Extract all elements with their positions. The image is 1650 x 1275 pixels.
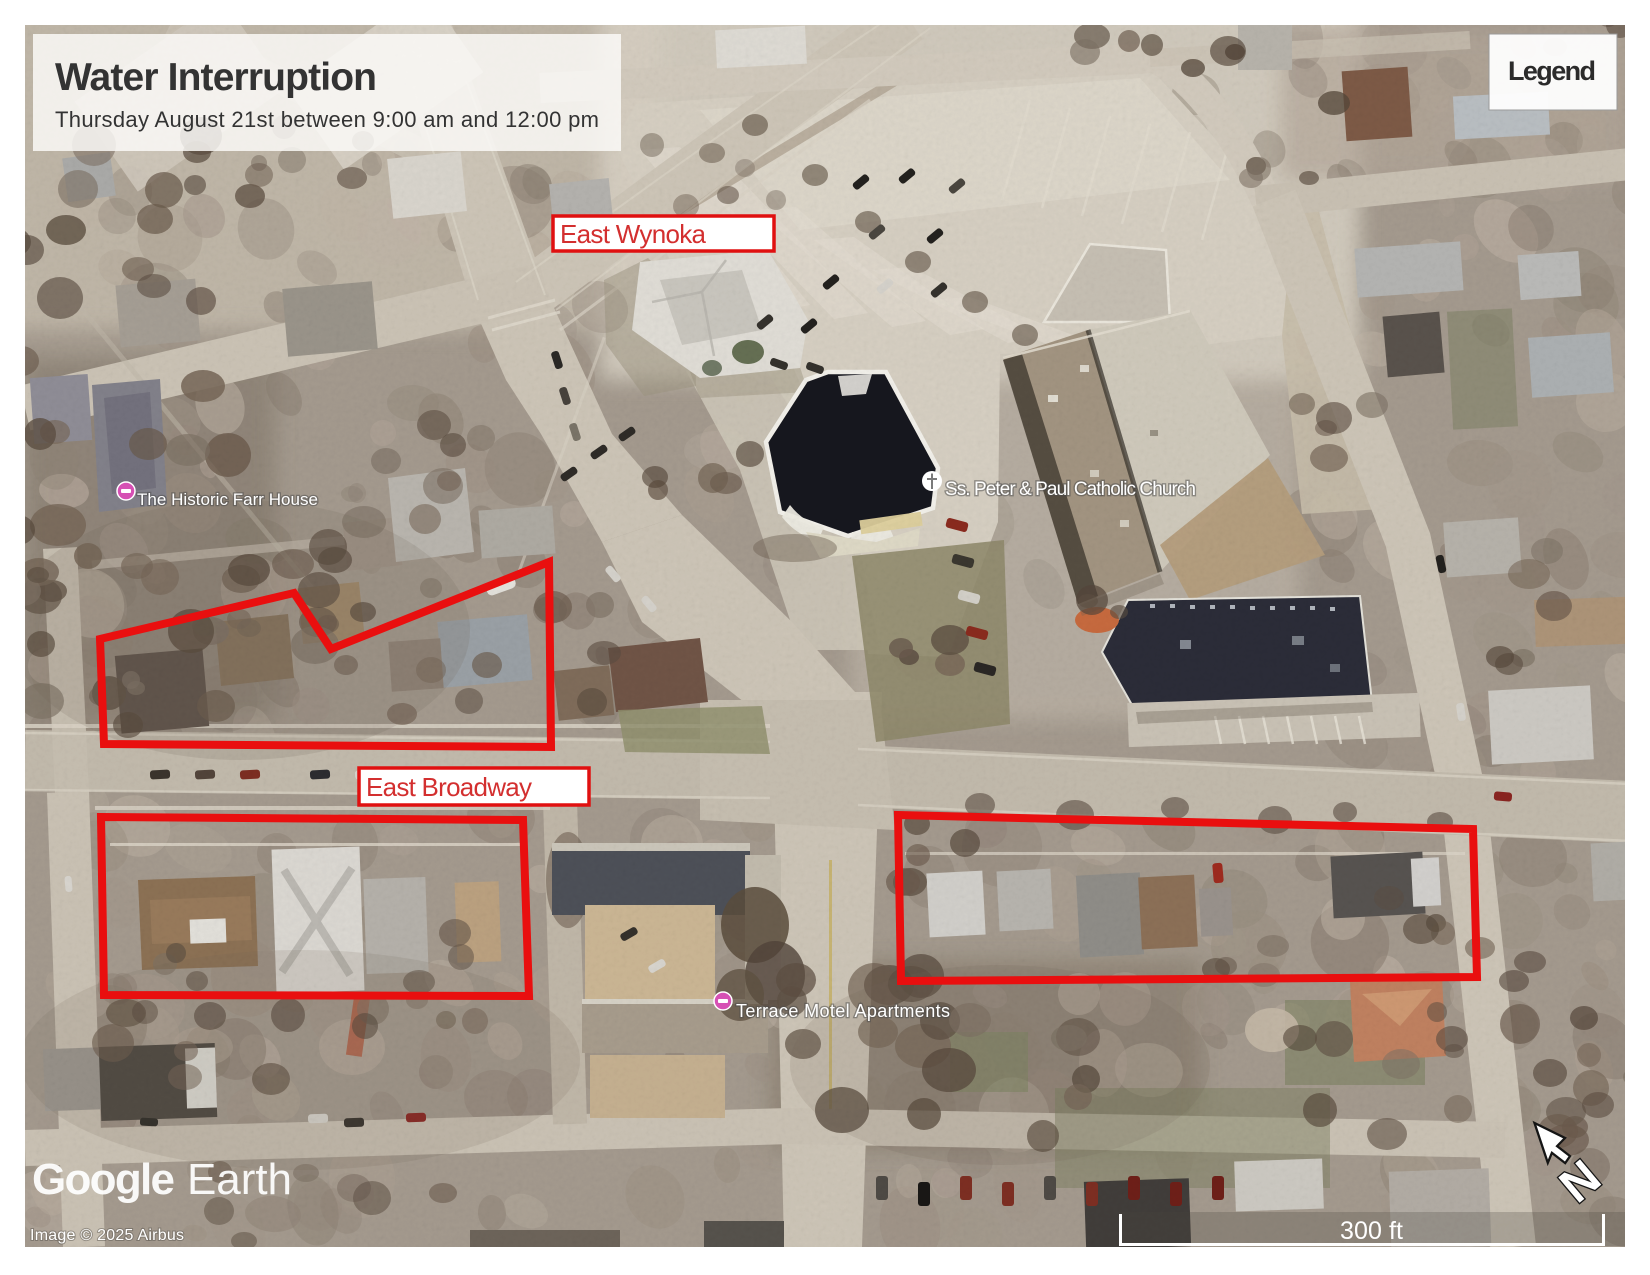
svg-text:The Historic Farr House: The Historic Farr House — [137, 490, 318, 509]
svg-text:Earth: Earth — [187, 1155, 292, 1204]
svg-text:East Wynoka: East Wynoka — [560, 219, 707, 249]
svg-text:300 ft: 300 ft — [1340, 1217, 1403, 1245]
svg-text:East Broadway: East Broadway — [366, 772, 532, 802]
svg-text:Terrace Motel Apartments: Terrace Motel Apartments — [736, 1001, 950, 1021]
svg-text:Google: Google — [32, 1155, 175, 1204]
svg-text:Image © 2025 Airbus: Image © 2025 Airbus — [30, 1227, 184, 1244]
svg-text:Legend: Legend — [1508, 56, 1596, 86]
svg-text:Ss. Peter & Paul Catholic Chur: Ss. Peter & Paul Catholic Church — [945, 479, 1196, 500]
svg-text:Water Interruption: Water Interruption — [55, 56, 377, 99]
svg-text:Thursday August 21st between 9: Thursday August 21st between 9:00 am and… — [55, 107, 599, 132]
